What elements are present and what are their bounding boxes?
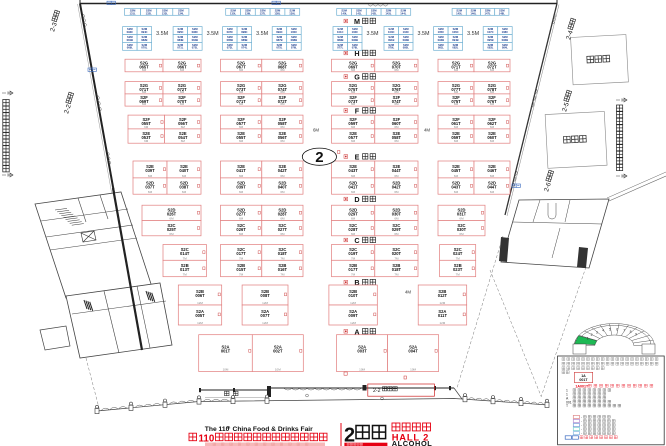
svg-text:043T: 043T	[348, 168, 358, 173]
svg-text:6M: 6M	[148, 190, 153, 194]
svg-text:6M: 6M	[394, 174, 399, 178]
svg-text:6M: 6M	[144, 125, 149, 129]
svg-text:6M: 6M	[394, 125, 399, 129]
svg-text:7M: 7M	[456, 273, 461, 277]
svg-text:6M: 6M	[313, 128, 319, 133]
svg-text:6M: 6M	[142, 90, 147, 94]
svg-text:6M: 6M	[280, 190, 285, 194]
svg-text:085B: 085B	[227, 38, 233, 42]
svg-text:6M: 6M	[454, 139, 459, 143]
svg-text:040T: 040T	[278, 185, 288, 190]
svg-text:080L: 080L	[403, 46, 409, 50]
svg-text:040T: 040T	[179, 168, 189, 173]
svg-text:007T: 007T	[260, 313, 270, 318]
svg-text:070L: 070L	[141, 46, 147, 50]
svg-text:082B: 082B	[141, 38, 147, 42]
svg-text:6M: 6M	[394, 217, 399, 221]
svg-text:4M: 4M	[424, 128, 430, 133]
svg-text:105C: 105C	[438, 30, 444, 34]
svg-text:2: 2	[591, 333, 593, 337]
svg-text:5: 5	[609, 328, 611, 332]
svg-text:6M: 6M	[351, 102, 356, 106]
svg-text:148L: 148L	[499, 11, 505, 15]
svg-text:089B: 089B	[337, 38, 343, 42]
svg-text:6M: 6M	[169, 232, 174, 236]
svg-text:041T: 041T	[236, 168, 246, 173]
svg-text:6M: 6M	[239, 174, 244, 178]
svg-text:045T: 045T	[451, 168, 461, 173]
svg-text:7M: 7M	[394, 273, 399, 277]
svg-text:12M: 12M	[262, 321, 268, 325]
svg-text:146L: 146L	[470, 11, 476, 15]
svg-text:6M: 6M	[239, 90, 244, 94]
svg-text:12M: 12M	[262, 301, 268, 305]
svg-text:142L: 142L	[371, 11, 377, 15]
svg-text:081B: 081B	[127, 38, 133, 42]
svg-text:6M: 6M	[454, 68, 459, 72]
svg-text:100C: 100C	[291, 30, 297, 34]
svg-text:2: 2	[315, 149, 323, 166]
svg-text:072L: 072L	[192, 46, 198, 50]
svg-text:7M: 7M	[351, 256, 356, 260]
svg-text:133L: 133L	[162, 11, 168, 15]
svg-text:12M: 12M	[350, 301, 356, 305]
svg-text:9: 9	[635, 333, 637, 337]
svg-text:4: 4	[602, 329, 604, 333]
svg-text:098C: 098C	[241, 30, 247, 34]
svg-text:6M: 6M	[144, 139, 149, 143]
svg-text:th: th	[227, 425, 231, 430]
svg-text:096C: 096C	[192, 30, 198, 34]
svg-text:134L: 134L	[178, 11, 184, 15]
svg-text:6M: 6M	[280, 232, 285, 236]
svg-text:10M: 10M	[410, 368, 416, 372]
svg-text:091B: 091B	[388, 38, 394, 42]
svg-text:004T: 004T	[408, 348, 418, 353]
svg-text:6M: 6M	[280, 90, 285, 94]
svg-text:G: G	[354, 73, 360, 82]
svg-text:12M: 12M	[439, 321, 445, 325]
svg-text:6M: 6M	[239, 217, 244, 221]
svg-text:3.5M: 3.5M	[418, 31, 430, 37]
svg-text:1: 1	[587, 336, 589, 340]
svg-text:069L: 069L	[127, 46, 133, 50]
svg-text:046T: 046T	[487, 168, 497, 173]
svg-text:043T: 043T	[451, 185, 461, 190]
svg-text:008T: 008T	[260, 293, 270, 298]
svg-text:12M: 12M	[197, 321, 203, 325]
svg-text:2-2: 2-2	[373, 388, 381, 394]
svg-text:082L: 082L	[452, 46, 458, 50]
svg-text:3.5M: 3.5M	[367, 31, 379, 37]
svg-text:038T: 038T	[179, 185, 189, 190]
svg-text:6M: 6M	[142, 102, 147, 106]
svg-text:6M: 6M	[490, 174, 495, 178]
svg-text:6M: 6M	[351, 190, 356, 194]
svg-text:013T: 013T	[180, 267, 190, 272]
svg-text:7M: 7M	[183, 273, 188, 277]
svg-text:106C: 106C	[452, 30, 458, 34]
svg-text:3.5M: 3.5M	[467, 31, 479, 37]
svg-text:7M: 7M	[280, 273, 285, 277]
svg-text:086B: 086B	[241, 38, 247, 42]
svg-text:6M: 6M	[148, 174, 153, 178]
svg-text:037T: 037T	[145, 185, 155, 190]
svg-text:6M: 6M	[280, 68, 285, 72]
svg-text:6M: 6M	[181, 125, 186, 129]
svg-text:042T: 042T	[278, 168, 288, 173]
svg-text:7M: 7M	[394, 256, 399, 260]
svg-text:010T: 010T	[348, 293, 358, 298]
svg-text:084L: 084L	[502, 46, 508, 50]
svg-text:6M: 6M	[280, 139, 285, 143]
svg-text:8: 8	[630, 330, 632, 334]
svg-text:H: H	[354, 49, 359, 58]
svg-text:6M: 6M	[239, 68, 244, 72]
svg-text:003T: 003T	[357, 348, 367, 353]
svg-text:011T: 011T	[438, 313, 448, 318]
svg-text:147L: 147L	[485, 11, 491, 15]
svg-text:6M: 6M	[181, 139, 186, 143]
svg-text:6M: 6M	[394, 68, 399, 72]
svg-text:6M: 6M	[459, 232, 464, 236]
svg-text:3.5M: 3.5M	[207, 31, 219, 37]
svg-text:107C: 107C	[487, 30, 493, 34]
svg-text:102C: 102C	[352, 30, 358, 34]
svg-text:012T: 012T	[438, 293, 448, 298]
svg-text:090B: 090B	[352, 38, 358, 42]
svg-text:136L: 136L	[245, 11, 251, 15]
svg-text:075L: 075L	[276, 46, 282, 50]
svg-text:095B: 095B	[487, 38, 493, 42]
svg-text:017T: 017T	[348, 267, 358, 272]
svg-text:China Food & Drinks Fair: China Food & Drinks Fair	[233, 426, 314, 433]
svg-text:6M: 6M	[182, 190, 187, 194]
svg-text:7: 7	[623, 328, 625, 332]
svg-text:139L: 139L	[289, 11, 295, 15]
svg-text:041T: 041T	[348, 185, 358, 190]
svg-text:099C: 099C	[276, 30, 282, 34]
svg-text:6M: 6M	[394, 232, 399, 236]
svg-text:6M: 6M	[351, 125, 356, 129]
svg-text:T: T	[566, 404, 568, 408]
svg-text:12M: 12M	[350, 321, 356, 325]
svg-text:6M: 6M	[490, 90, 495, 94]
svg-text:6M: 6M	[490, 68, 495, 72]
svg-text:6M: 6M	[351, 68, 356, 72]
svg-text:6M: 6M	[459, 217, 464, 221]
svg-text:095C: 095C	[177, 30, 183, 34]
svg-text:088B: 088B	[291, 38, 297, 42]
svg-text:096B: 096B	[502, 38, 508, 42]
svg-text:005T: 005T	[195, 313, 205, 318]
svg-text:044T: 044T	[487, 185, 497, 190]
svg-text:3.5M: 3.5M	[256, 31, 268, 37]
svg-text:6M: 6M	[490, 102, 495, 106]
svg-text:042T: 042T	[392, 185, 402, 190]
svg-text:4M: 4M	[405, 290, 411, 295]
svg-text:1A001T: 1A001T	[575, 384, 589, 388]
svg-text:6: 6	[616, 327, 618, 331]
svg-text:6M: 6M	[490, 139, 495, 143]
svg-text:6M: 6M	[454, 174, 459, 178]
svg-text:7M: 7M	[456, 256, 461, 260]
svg-text:097C: 097C	[227, 30, 233, 34]
svg-text:6M: 6M	[142, 68, 147, 72]
svg-text:6M: 6M	[180, 90, 185, 94]
svg-text:7M: 7M	[239, 256, 244, 260]
svg-text:083B: 083B	[177, 38, 183, 42]
svg-text:023T: 023T	[453, 267, 463, 272]
svg-text:7M: 7M	[280, 256, 285, 260]
svg-text:6M: 6M	[394, 90, 399, 94]
svg-text:6M: 6M	[169, 217, 174, 221]
svg-text:087B: 087B	[276, 38, 282, 42]
svg-text:10M: 10M	[359, 368, 365, 372]
svg-text:M: M	[354, 17, 360, 26]
svg-text:131L: 131L	[130, 11, 136, 15]
svg-text:6M: 6M	[490, 125, 495, 129]
svg-text:6M: 6M	[351, 217, 356, 221]
svg-text:7M: 7M	[183, 256, 188, 260]
svg-text:3: 3	[596, 331, 598, 335]
svg-text:144L: 144L	[400, 11, 406, 15]
svg-text:6M: 6M	[394, 139, 399, 143]
svg-text:140L: 140L	[341, 11, 347, 15]
svg-text:108C: 108C	[502, 30, 508, 34]
svg-text:015T: 015T	[236, 267, 246, 272]
svg-text:077L: 077L	[337, 46, 343, 50]
svg-text:135L: 135L	[230, 11, 236, 15]
svg-text:093C: 093C	[127, 30, 133, 34]
svg-text:039T: 039T	[145, 168, 155, 173]
svg-text:044T: 044T	[392, 168, 402, 173]
svg-text:6M: 6M	[239, 102, 244, 106]
svg-text:145L: 145L	[456, 11, 462, 15]
svg-text:6M: 6M	[490, 190, 495, 194]
svg-text:076L: 076L	[291, 46, 297, 50]
svg-text:009T: 009T	[348, 313, 358, 318]
svg-text:F: F	[355, 107, 360, 116]
svg-text:103C: 103C	[388, 30, 394, 34]
svg-text:6M: 6M	[180, 68, 185, 72]
svg-text:141L: 141L	[356, 11, 362, 15]
svg-text:6M: 6M	[351, 90, 356, 94]
svg-text:3.5M: 3.5M	[156, 31, 168, 37]
svg-text:6M: 6M	[454, 190, 459, 194]
svg-text:079L: 079L	[388, 46, 394, 50]
svg-text:093B: 093B	[438, 38, 444, 42]
svg-text:001T: 001T	[221, 348, 231, 353]
svg-text:ALCOHOL: ALCOHOL	[392, 439, 433, 446]
svg-text:002T: 002T	[273, 348, 283, 353]
svg-text:6M: 6M	[351, 174, 356, 178]
svg-text:094B: 094B	[452, 38, 458, 42]
svg-text:039T: 039T	[236, 185, 246, 190]
svg-text:6M: 6M	[239, 190, 244, 194]
svg-text:001T: 001T	[579, 378, 588, 382]
svg-text:6M: 6M	[280, 217, 285, 221]
svg-text:6M: 6M	[351, 139, 356, 143]
svg-text:074L: 074L	[241, 46, 247, 50]
svg-text:081L: 081L	[438, 46, 444, 50]
svg-text:E: E	[355, 153, 360, 162]
svg-text:073L: 073L	[227, 46, 233, 50]
svg-text:D: D	[354, 195, 359, 204]
svg-text:6M: 6M	[454, 102, 459, 106]
svg-text:6M: 6M	[239, 125, 244, 129]
svg-text:6M: 6M	[454, 125, 459, 129]
svg-text:6M: 6M	[394, 190, 399, 194]
svg-text:7M: 7M	[351, 273, 356, 277]
svg-text:016T: 016T	[278, 267, 288, 272]
svg-text:6M: 6M	[239, 232, 244, 236]
svg-text:143L: 143L	[385, 11, 391, 15]
svg-text:104C: 104C	[403, 30, 409, 34]
svg-text:006T: 006T	[195, 293, 205, 298]
svg-text:10M: 10M	[275, 368, 281, 372]
svg-text:101C: 101C	[337, 30, 343, 34]
svg-text:6M: 6M	[280, 125, 285, 129]
svg-text:094C: 094C	[141, 30, 147, 34]
svg-text:084B: 084B	[192, 38, 198, 42]
svg-text:6M: 6M	[351, 232, 356, 236]
svg-text:C: C	[354, 236, 359, 245]
svg-text:6M: 6M	[280, 102, 285, 106]
svg-text:092B: 092B	[403, 38, 409, 42]
svg-text:083L: 083L	[487, 46, 493, 50]
svg-text:6M: 6M	[280, 174, 285, 178]
svg-text:138L: 138L	[274, 11, 280, 15]
svg-text:12M: 12M	[439, 301, 445, 305]
svg-text:071L: 071L	[177, 46, 183, 50]
svg-text:6M: 6M	[454, 90, 459, 94]
svg-text:6M: 6M	[182, 174, 187, 178]
svg-text:6M: 6M	[394, 102, 399, 106]
svg-text:12M: 12M	[197, 301, 203, 305]
svg-text:-: -	[581, 432, 582, 436]
svg-text:7M: 7M	[239, 273, 244, 277]
svg-text:6M: 6M	[180, 102, 185, 106]
svg-text:6M: 6M	[239, 139, 244, 143]
svg-text:10M: 10M	[223, 368, 229, 372]
svg-text:018T: 018T	[392, 267, 402, 272]
svg-text:137L: 137L	[260, 11, 266, 15]
svg-text:132L: 132L	[146, 11, 152, 15]
